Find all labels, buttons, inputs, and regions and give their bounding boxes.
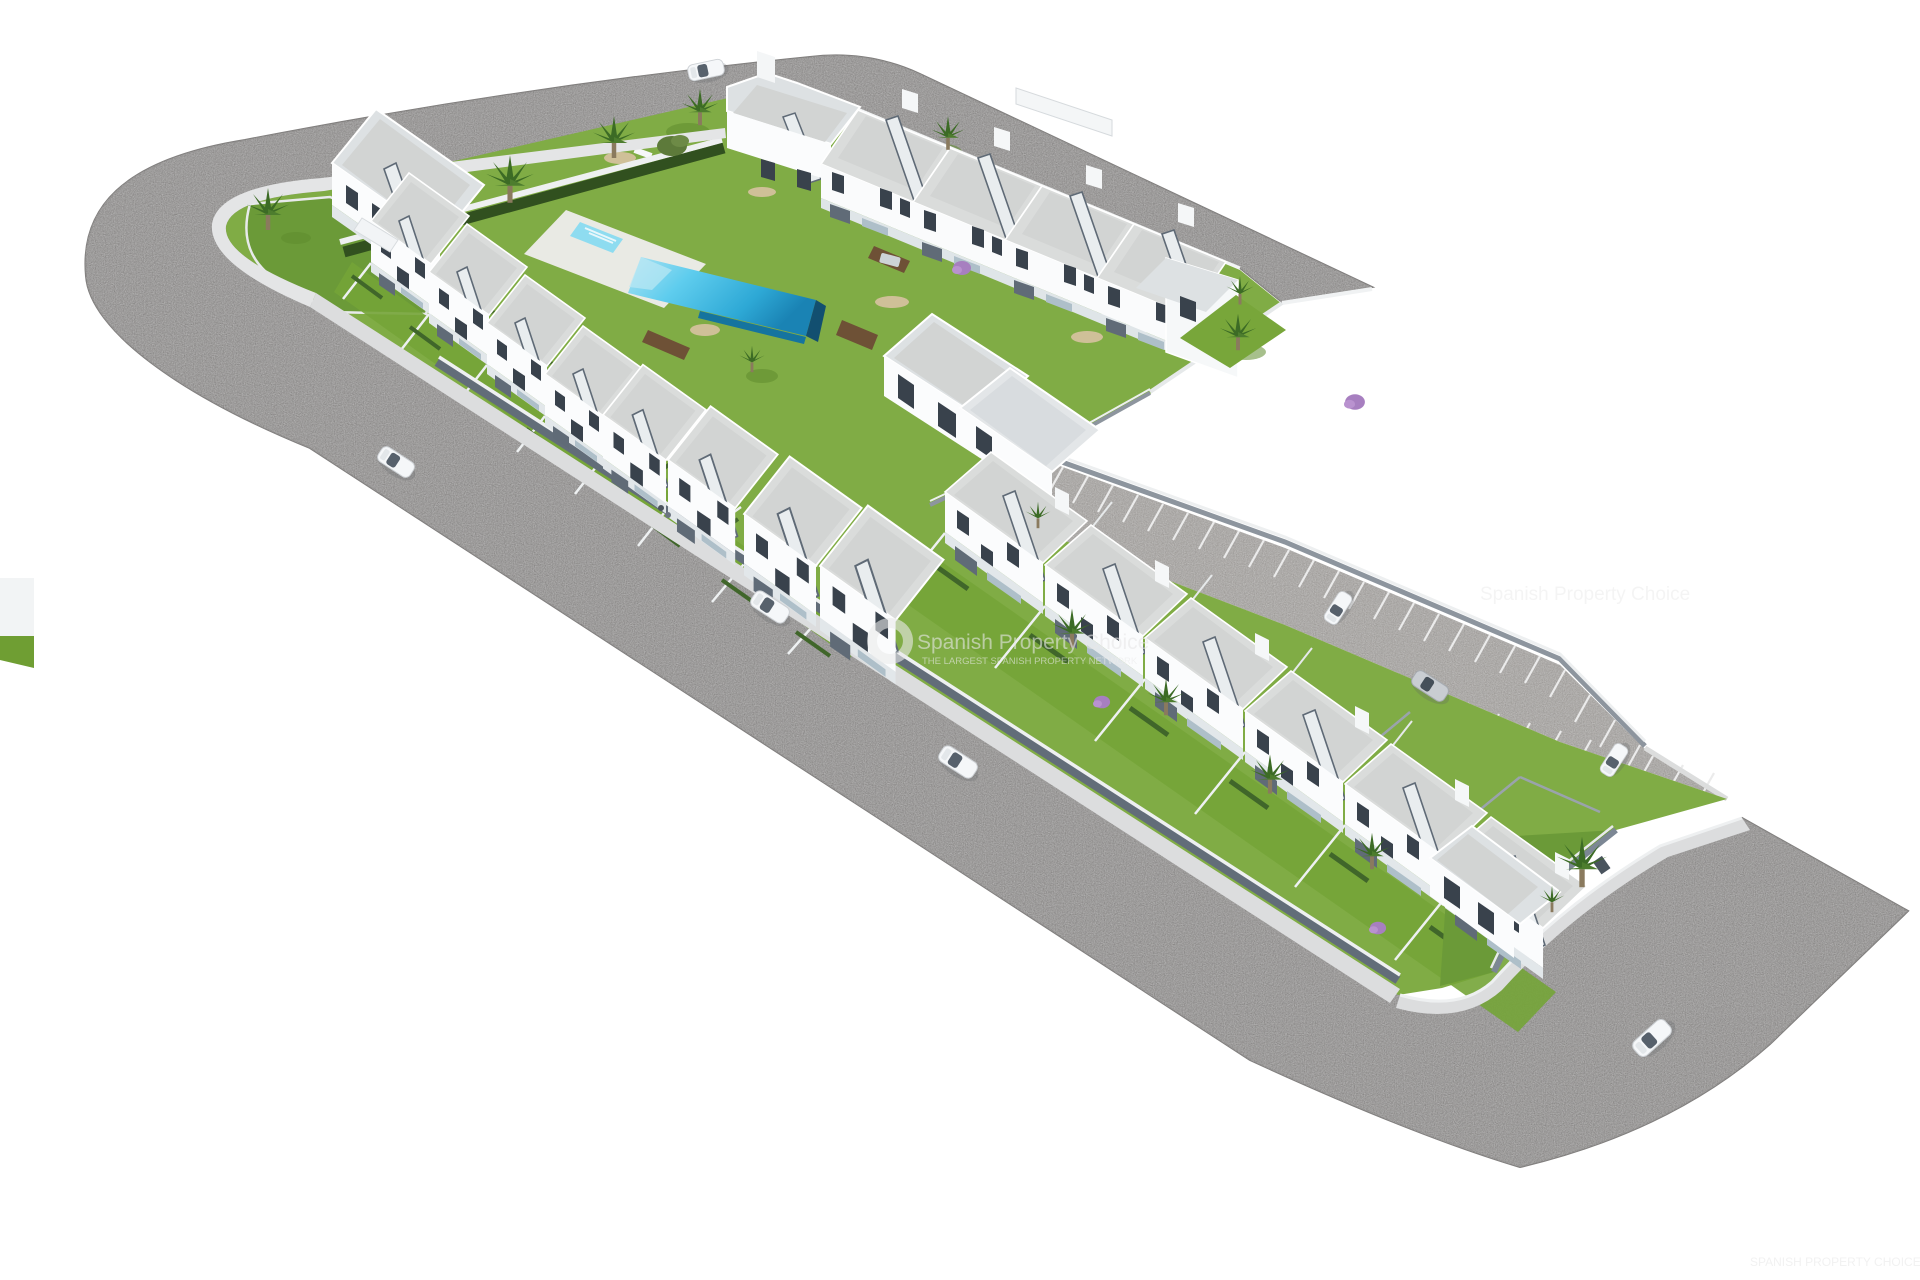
svg-text:Spanish Property Choice: Spanish Property Choice [1480, 584, 1690, 605]
svg-text:Spanish Property Choice: Spanish Property Choice [917, 631, 1149, 654]
svg-text:SPANISH PROPERTY CHOICE: SPANISH PROPERTY CHOICE [1750, 1255, 1920, 1269]
svg-text:THE LARGEST SPANISH PROPERTY N: THE LARGEST SPANISH PROPERTY NETWORK [922, 656, 1138, 667]
